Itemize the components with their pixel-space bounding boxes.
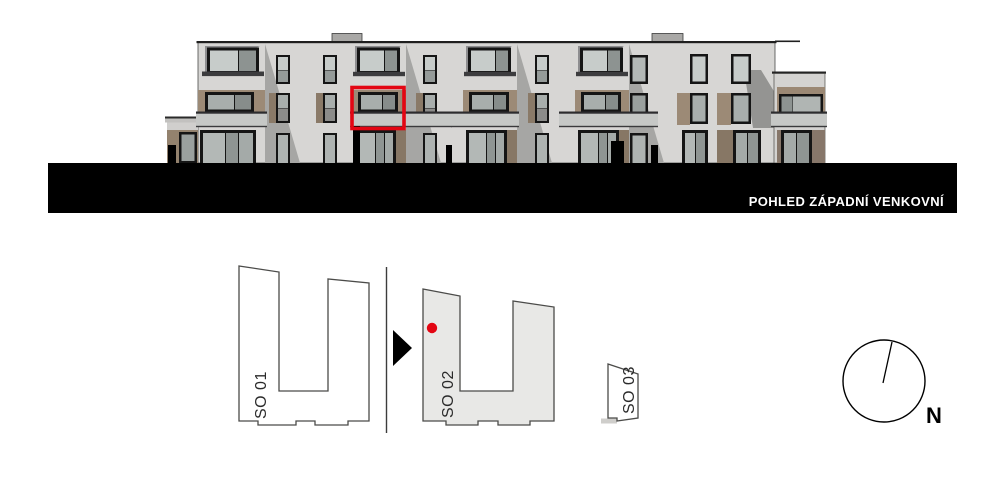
roof-parapet (197, 41, 777, 43)
balcony-bays (352, 46, 629, 163)
architectural-drawing: POHLED ZÁPADNÍ VENKOVNÍ SO 01 SO 02 SO 0… (0, 0, 1000, 483)
site-plan: SO 01 SO 02 SO 03 N (239, 266, 942, 433)
so03-base-tab (601, 419, 617, 424)
north-compass: N (843, 340, 942, 428)
roof-cap-line (775, 41, 800, 43)
balcony-railings (350, 112, 658, 128)
right-annex (771, 72, 827, 164)
drawing-canvas: POHLED ZÁPADNÍ VENKOVNÍ SO 01 SO 02 SO 0… (0, 0, 1000, 483)
west-elevation: POHLED ZÁPADNÍ VENKOVNÍ (48, 34, 957, 214)
compass-north-label: N (926, 403, 942, 428)
unit-location-marker[interactable] (427, 323, 437, 333)
elevation-caption: POHLED ZÁPADNÍ VENKOVNÍ (749, 194, 944, 209)
building-so02-label: SO 02 (440, 370, 457, 418)
building-so03-label: SO 03 (621, 366, 638, 414)
selection-arrow-icon (393, 330, 412, 366)
building-so01-label: SO 01 (253, 371, 270, 419)
